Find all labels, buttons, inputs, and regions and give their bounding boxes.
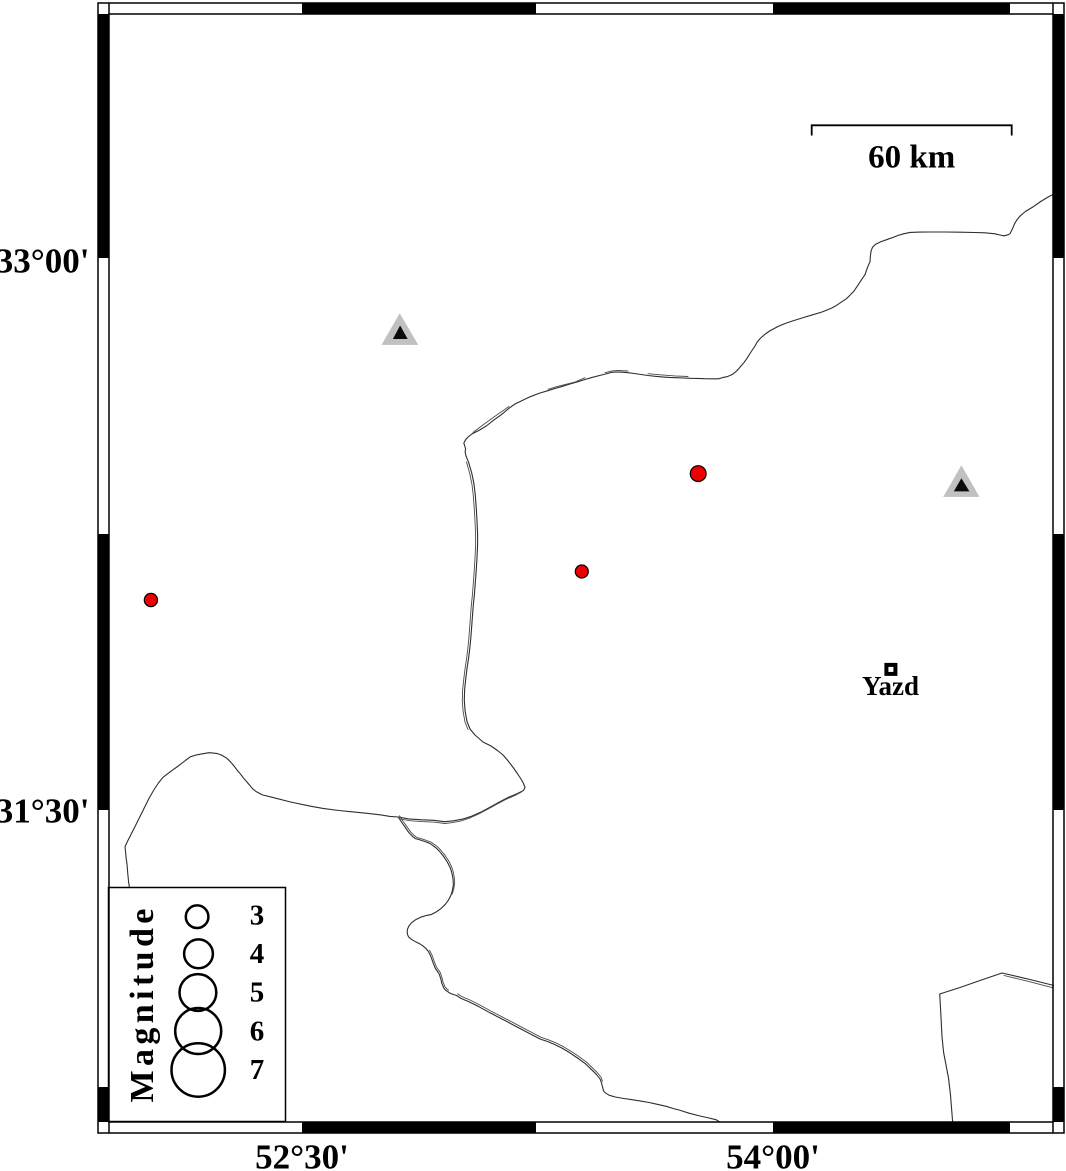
svg-text:6: 6: [250, 1016, 265, 1048]
svg-text:54°00': 54°00': [726, 1138, 820, 1171]
svg-text:52°30': 52°30': [255, 1138, 349, 1171]
svg-text:33°00': 33°00': [0, 242, 90, 281]
svg-text:31°30': 31°30': [0, 792, 90, 831]
svg-text:60 km: 60 km: [868, 140, 955, 176]
svg-text:4: 4: [250, 938, 265, 970]
svg-text:3: 3: [250, 900, 265, 932]
svg-text:Magnitude: Magnitude: [124, 904, 161, 1102]
svg-text:7: 7: [250, 1054, 265, 1086]
svg-text:Yazd: Yazd: [862, 671, 919, 701]
svg-text:5: 5: [250, 977, 265, 1009]
